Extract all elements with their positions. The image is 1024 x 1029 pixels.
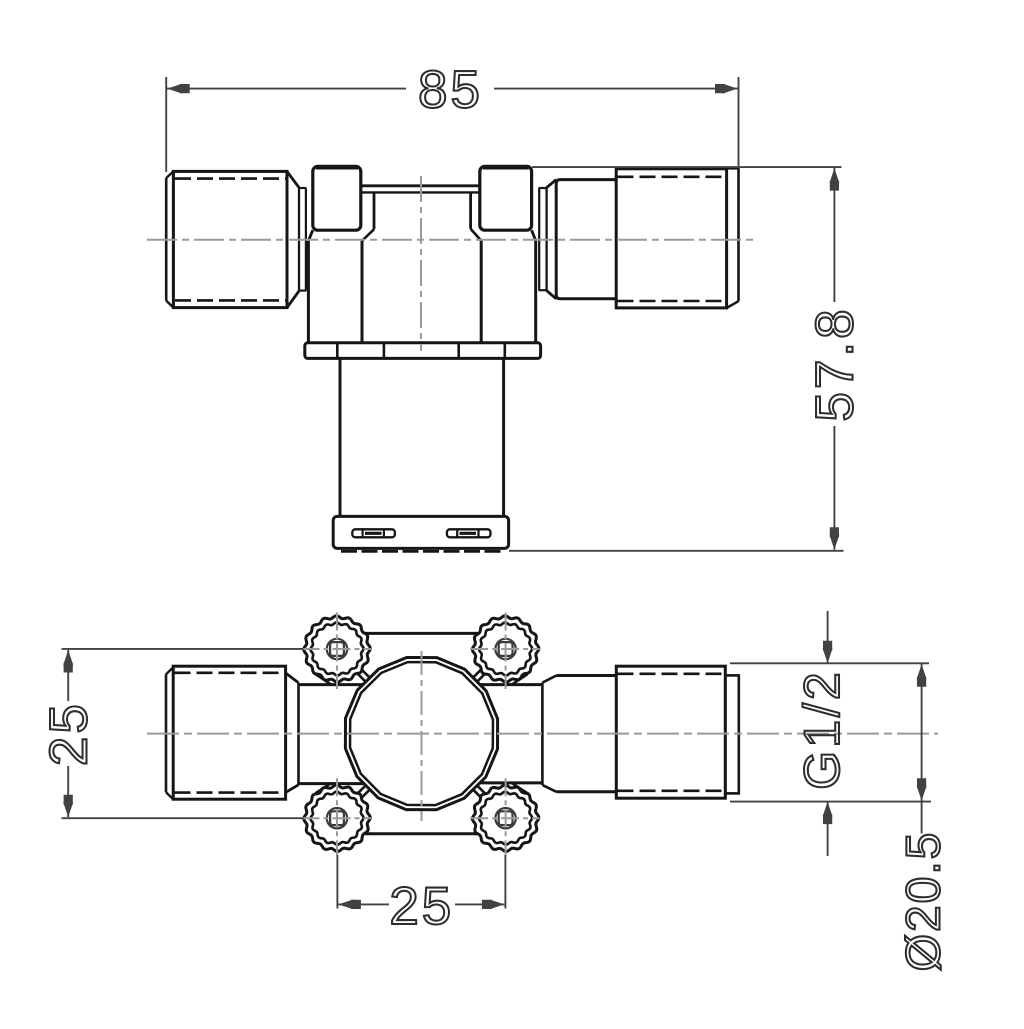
svg-text:G1/2: G1/2 [794,669,850,789]
svg-text:57.8: 57.8 [806,306,865,421]
svg-text:25: 25 [389,877,454,936]
svg-text:Ø20.5: Ø20.5 [898,831,951,972]
svg-text:85: 85 [418,61,483,120]
svg-text:25: 25 [40,701,99,766]
